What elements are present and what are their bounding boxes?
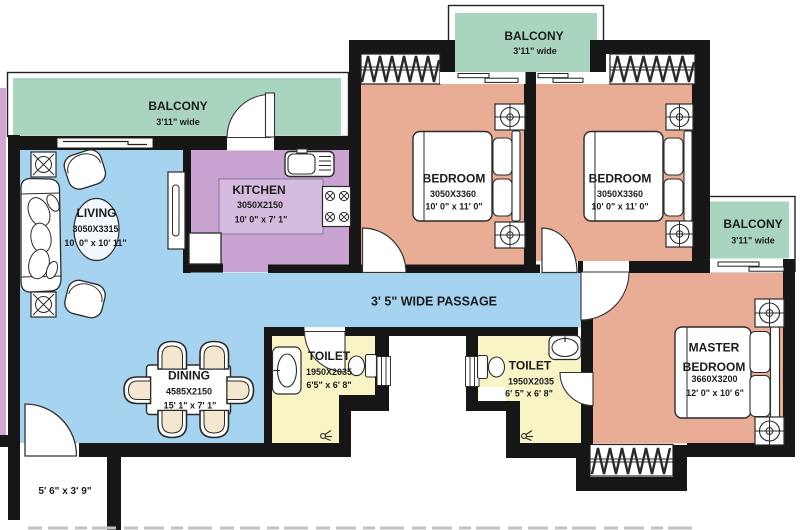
- svg-text:BEDROOM: BEDROOM: [683, 360, 746, 374]
- svg-text:1950X2035: 1950X2035: [508, 377, 554, 387]
- svg-text:10' 0" x 10' 11": 10' 0" x 10' 11": [64, 238, 126, 248]
- svg-text:4585X2150: 4585X2150: [166, 387, 212, 397]
- svg-text:LIVING: LIVING: [76, 206, 116, 220]
- svg-text:TOILET: TOILET: [308, 349, 351, 363]
- svg-text:BEDROOM: BEDROOM: [589, 172, 652, 186]
- svg-text:3050X2150: 3050X2150: [237, 200, 283, 210]
- svg-text:TOILET: TOILET: [509, 359, 552, 373]
- svg-text:6'5" x 6' 8": 6'5" x 6' 8": [306, 380, 351, 390]
- svg-text:BALCONY: BALCONY: [723, 217, 782, 231]
- svg-text:6' 5" x 6' 8": 6' 5" x 6' 8": [505, 389, 553, 399]
- svg-text:3'11" wide: 3'11" wide: [513, 46, 556, 56]
- svg-text:10' 0" x 7' 1": 10' 0" x 7' 1": [235, 215, 288, 225]
- svg-text:5' 6" x 3' 9": 5' 6" x 3' 9": [38, 486, 91, 497]
- svg-text:12' 0" x 10' 6": 12' 0" x 10' 6": [686, 388, 744, 398]
- svg-text:10' 0" x 11' 0": 10' 0" x 11' 0": [425, 202, 482, 212]
- svg-text:1950X2035: 1950X2035: [306, 367, 352, 377]
- svg-text:KITCHEN: KITCHEN: [232, 183, 285, 197]
- svg-text:3'11" wide: 3'11" wide: [731, 236, 774, 246]
- svg-text:3050X3360: 3050X3360: [430, 189, 476, 199]
- svg-text:DINING: DINING: [168, 369, 210, 383]
- svg-text:3050X3315: 3050X3315: [72, 224, 118, 234]
- svg-text:3'11" wide: 3'11" wide: [156, 117, 199, 127]
- svg-text:MASTER: MASTER: [689, 341, 740, 355]
- svg-text:BALCONY: BALCONY: [148, 99, 207, 113]
- svg-text:3' 5" WIDE PASSAGE: 3' 5" WIDE PASSAGE: [371, 295, 497, 309]
- svg-text:3050X3360: 3050X3360: [597, 189, 643, 199]
- svg-text:BEDROOM: BEDROOM: [423, 172, 486, 186]
- svg-text:15' 1" x 7' 1": 15' 1" x 7' 1": [164, 401, 217, 411]
- svg-text:3660X3200: 3660X3200: [691, 374, 737, 384]
- svg-text:BALCONY: BALCONY: [504, 29, 563, 43]
- svg-text:10' 0" x 11' 0": 10' 0" x 11' 0": [591, 202, 648, 212]
